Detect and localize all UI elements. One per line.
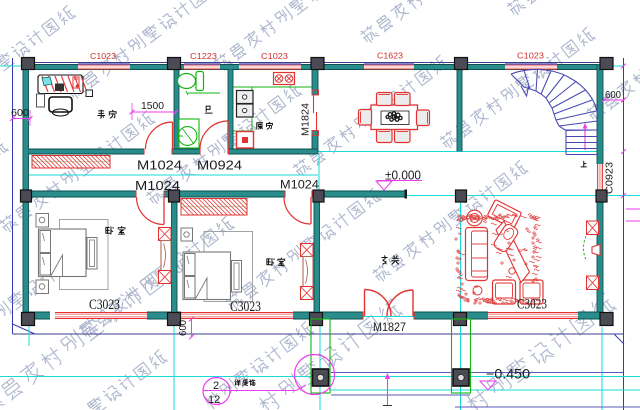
svg-text:M1024: M1024 (135, 178, 180, 193)
svg-text:M0924: M0924 (197, 158, 242, 173)
svg-text:600: 600 (605, 90, 621, 101)
svg-text:C3023: C3023 (89, 297, 120, 313)
svg-text:C1623: C1623 (377, 51, 403, 61)
svg-text:C1023: C1023 (261, 51, 288, 61)
svg-text:600: 600 (178, 320, 189, 336)
svg-text:M1024: M1024 (280, 180, 320, 192)
svg-text:C1223: C1223 (190, 51, 217, 61)
svg-text:C3023: C3023 (517, 297, 547, 313)
svg-text:1500: 1500 (141, 100, 164, 112)
svg-text:2: 2 (213, 380, 219, 392)
svg-text:C1023: C1023 (517, 51, 544, 61)
svg-text:C3023: C3023 (230, 299, 261, 315)
svg-text:C1023: C1023 (90, 51, 116, 61)
svg-text:12: 12 (208, 394, 220, 406)
svg-text:C0923: C0923 (604, 162, 616, 194)
svg-text:±0.000: ±0.000 (385, 168, 421, 183)
svg-text:−0.450: −0.450 (486, 367, 530, 382)
svg-text:M1827: M1827 (373, 322, 406, 334)
svg-text:600: 600 (11, 108, 29, 119)
svg-text:M1824: M1824 (300, 103, 312, 136)
svg-text:M1024: M1024 (137, 158, 182, 173)
